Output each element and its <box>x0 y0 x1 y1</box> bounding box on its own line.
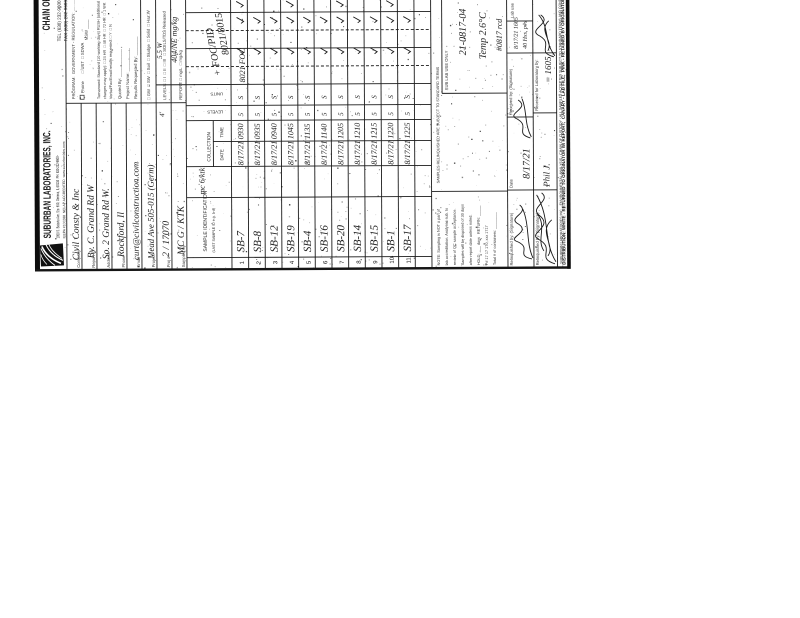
svg-text:SAMPLES RELINQUISHED ARE SUBJE: SAMPLES RELINQUISHED ARE SUBJECT TO STAN… <box>436 66 441 183</box>
svg-text:CHAIN OF CUSTODY RECORD: CHAIN OF CUSTODY RECORD <box>40 0 53 30</box>
svg-text:SB-15: SB-15 <box>369 224 381 251</box>
svg-text:(LAST SAMPLE ID e.g. b-d): (LAST SAMPLE ID e.g. b-d) <box>212 208 216 253</box>
svg-text:□ UST □ SDWA: □ UST □ SDWA <box>80 40 85 73</box>
svg-text:1135: 1135 <box>303 124 312 139</box>
svg-text:TEL (630) 232-9600 Nº 172205: TEL (630) 232-9600 Nº 172205 <box>56 0 61 41</box>
svg-text:5: 5 <box>354 112 362 116</box>
svg-text:8/17/21: 8/17/21 <box>386 140 395 164</box>
svg-text:S: S <box>370 95 378 99</box>
svg-text:S: S <box>320 95 328 99</box>
svg-text:Lab use: Lab use <box>510 2 515 18</box>
svg-text:DATE: DATE <box>219 149 224 160</box>
svg-text:8/17/21 1605: 8/17/21 1605 <box>514 17 520 49</box>
svg-text:0940: 0940 <box>270 123 279 139</box>
svg-text:8/17/21: 8/17/21 <box>286 141 295 165</box>
svg-text:Phone: Phone <box>80 80 85 93</box>
svg-text:4′: 4′ <box>158 111 166 117</box>
svg-text:Phil J.: Phil J. <box>541 163 551 188</box>
svg-text:8/17/21: 8/17/21 <box>403 140 412 164</box>
svg-text:10: 10 <box>390 256 396 263</box>
svg-text:8/17/21: 8/17/21 <box>253 141 262 165</box>
svg-text:Relinquished by: (Signature): Relinquished by: (Signature) <box>509 212 514 265</box>
svg-text:1220: 1220 <box>386 123 395 139</box>
svg-text:1045: 1045 <box>286 123 295 139</box>
svg-text:4: 4 <box>290 260 296 264</box>
svg-text:2 / 17070: 2 / 17070 <box>162 221 172 257</box>
svg-text:HOLD: ___ days RETURN: _____: HOLD: ___ days RETURN: _____ <box>477 205 481 266</box>
svg-text:SB-4: SB-4 <box>302 230 314 252</box>
svg-text:5: 5 <box>254 112 262 116</box>
svg-text:5: 5 <box>287 112 295 116</box>
svg-text:0930: 0930 <box>236 123 245 139</box>
svg-text:8/17/21: 8/17/21 <box>521 148 532 179</box>
svg-text:Project Name: __________: Project Name: __________ <box>125 47 130 99</box>
svg-text:5.5 W: 5.5 W <box>156 41 164 59</box>
svg-text:S: S <box>287 95 295 99</box>
svg-text:8/17/21: 8/17/21 <box>370 140 379 164</box>
svg-text:Turnaround: Standard (10 worki: Turnaround: Standard (10 working days) R… <box>97 1 102 100</box>
svg-text:S: S <box>387 95 395 99</box>
svg-text:404/NE mg/kg: 404/NE mg/kg <box>170 17 179 63</box>
svg-text:SB-1: SB-1 <box>385 230 397 251</box>
svg-text:S: S <box>254 95 262 99</box>
svg-text:Temp 2.6°C: Temp 2.6°C <box>478 12 489 59</box>
svg-text:review of QC sample acceptance: review of QC sample acceptance. <box>453 209 457 266</box>
svg-text:8/17/21: 8/17/21 <box>303 141 312 165</box>
svg-text:PROGRAM: GOVERNMENT - REGULAT: PROGRAM: GOVERNMENT - REGULATION: ......… <box>71 0 77 99</box>
svg-text:8/17/21: 8/17/21 <box>320 141 329 165</box>
svg-text:8021 FOC: 8021 FOC <box>238 48 247 83</box>
svg-text:Verbal/Fax/Email results reque: Verbal/Fax/Email results requested: □ Y … <box>109 24 113 99</box>
svg-text:1215: 1215 <box>370 123 379 139</box>
svg-text:lab accreditation. Analyses su: lab accreditation. Analyses sub. to <box>445 208 449 265</box>
svg-text:SB-17: SB-17 <box>402 224 414 251</box>
svg-text:Received by: (Signature): Received by: (Signature) <box>508 68 513 115</box>
svg-text:S: S <box>354 95 362 99</box>
svg-text:2: 2 <box>257 260 263 264</box>
svg-text:mc 6/ktk: mc 6/ktk <box>197 167 206 194</box>
svg-text:8/17/21: 8/17/21 <box>336 140 345 164</box>
svg-text:7: 7 <box>340 260 346 264</box>
svg-text:3: 3 <box>273 260 279 264</box>
svg-text:SAMPLE IDENTIFICATION: SAMPLE IDENTIFICATION <box>203 190 209 251</box>
svg-text:5: 5 <box>404 112 412 116</box>
svg-text:1225: 1225 <box>403 123 412 139</box>
svg-text:6: 6 <box>323 260 329 264</box>
svg-text:Results Requested By: ________: Results Requested By: ________ <box>133 36 138 99</box>
svg-text:COLLECTION: COLLECTION <box>206 132 211 161</box>
svg-text:40 Hxs, p#s: 40 Hxs, p#s <box>522 20 529 49</box>
svg-text:5: 5 <box>320 112 328 116</box>
svg-text:Civil Consty & Inc: Civil Consty & Inc <box>72 188 82 260</box>
svg-text:P# 17 17 170, xxx 1717: P# 17 17 170, xxx 1717 <box>485 225 489 265</box>
svg-text:5: 5 <box>237 112 245 116</box>
svg-text:1210: 1210 <box>353 123 362 139</box>
svg-text:#0817 rcd: #0817 rcd <box>495 18 504 51</box>
svg-text:8/17/21: 8/17/21 <box>353 140 362 164</box>
svg-text:1950 S. Batavia Ave. Ste. 150,: 1950 S. Batavia Ave. Ste. 150, Geneva, I… <box>55 156 60 238</box>
svg-text:SB-19: SB-19 <box>285 225 297 252</box>
svg-text:5: 5 <box>387 112 395 116</box>
svg-text:0935: 0935 <box>253 123 262 139</box>
svg-text:SB-16: SB-16 <box>319 225 331 252</box>
svg-text:Quoted By: ____________: Quoted By: ____________ <box>117 48 122 99</box>
svg-text:TIME: TIME <box>219 127 224 138</box>
svg-text:curt@civilconstruction.com: curt@civilconstruction.com <box>130 162 141 260</box>
svg-text:S: S <box>237 95 245 99</box>
svg-text:8/17/21: 8/17/21 <box>270 141 279 165</box>
svg-text:ILEPA #100288 NELAP ACCREDITE: ILEPA #100288 NELAP ACCREDITED www.subur… <box>62 141 67 238</box>
svg-text:1: 1 <box>240 260 246 264</box>
svg-text:S: S <box>337 95 345 99</box>
svg-text:1140: 1140 <box>320 124 329 139</box>
svg-text:8/17/21: 8/17/21 <box>236 141 245 165</box>
svg-text:5: 5 <box>304 112 312 116</box>
svg-text:SUB LAB USE ONLY: SUB LAB USE ONLY <box>444 50 449 90</box>
svg-text:11: 11 <box>407 257 413 264</box>
svg-text:after report date unless noted: after report date unless noted. <box>469 215 473 266</box>
svg-text:NOTE: Sampling is NOT a part o: NOTE: Sampling is NOT a part of <box>437 208 441 265</box>
svg-text:8: 8 <box>357 260 363 264</box>
svg-text:5: 5 <box>337 112 345 116</box>
svg-text:Samples will be disposed of 30: Samples will be disposed of 30 days <box>461 204 465 265</box>
svg-text:21-0817-04: 21-0817-04 <box>458 9 469 56</box>
svg-text:Mead Ave 505-015 (Germ): Mead Ave 505-015 (Germ) <box>145 164 155 259</box>
svg-text:UNITS: UNITS <box>210 92 223 97</box>
svg-text:5: 5 <box>270 112 278 116</box>
svg-text:SB-12: SB-12 <box>269 225 281 252</box>
svg-text:5: 5 <box>307 260 313 264</box>
svg-text:SB-8: SB-8 <box>252 230 264 252</box>
svg-text:□ GW □ SW □ Soil □ Sludge: □ GW □ SW □ Soil □ Sludge □ Solid □ Haz.… <box>146 10 151 100</box>
svg-text:9: 9 <box>373 260 379 264</box>
svg-text:SB-20: SB-20 <box>335 224 347 251</box>
svg-text:SB-7: SB-7 <box>235 231 247 253</box>
svg-text:5: 5 <box>370 112 378 116</box>
svg-text:SB-14: SB-14 <box>352 224 364 251</box>
svg-text:S: S <box>304 95 312 99</box>
svg-text:Total # of containers: _______: Total # of containers: ________ <box>493 211 497 265</box>
svg-text:charges may apply): □ 24 HR □: charges may apply): □ 24 HR □ 48 HR □ 72… <box>103 2 108 99</box>
svg-text:So. 2 Grand Rd W.: So. 2 Grand Rd W. <box>102 188 112 259</box>
svg-text:SUBURBAN LABORATORIES, INC.: SUBURBAN LABORATORIES, INC. <box>41 130 54 238</box>
svg-text:1205: 1205 <box>336 123 345 139</box>
svg-text:LEVELS: LEVELS <box>207 110 223 115</box>
